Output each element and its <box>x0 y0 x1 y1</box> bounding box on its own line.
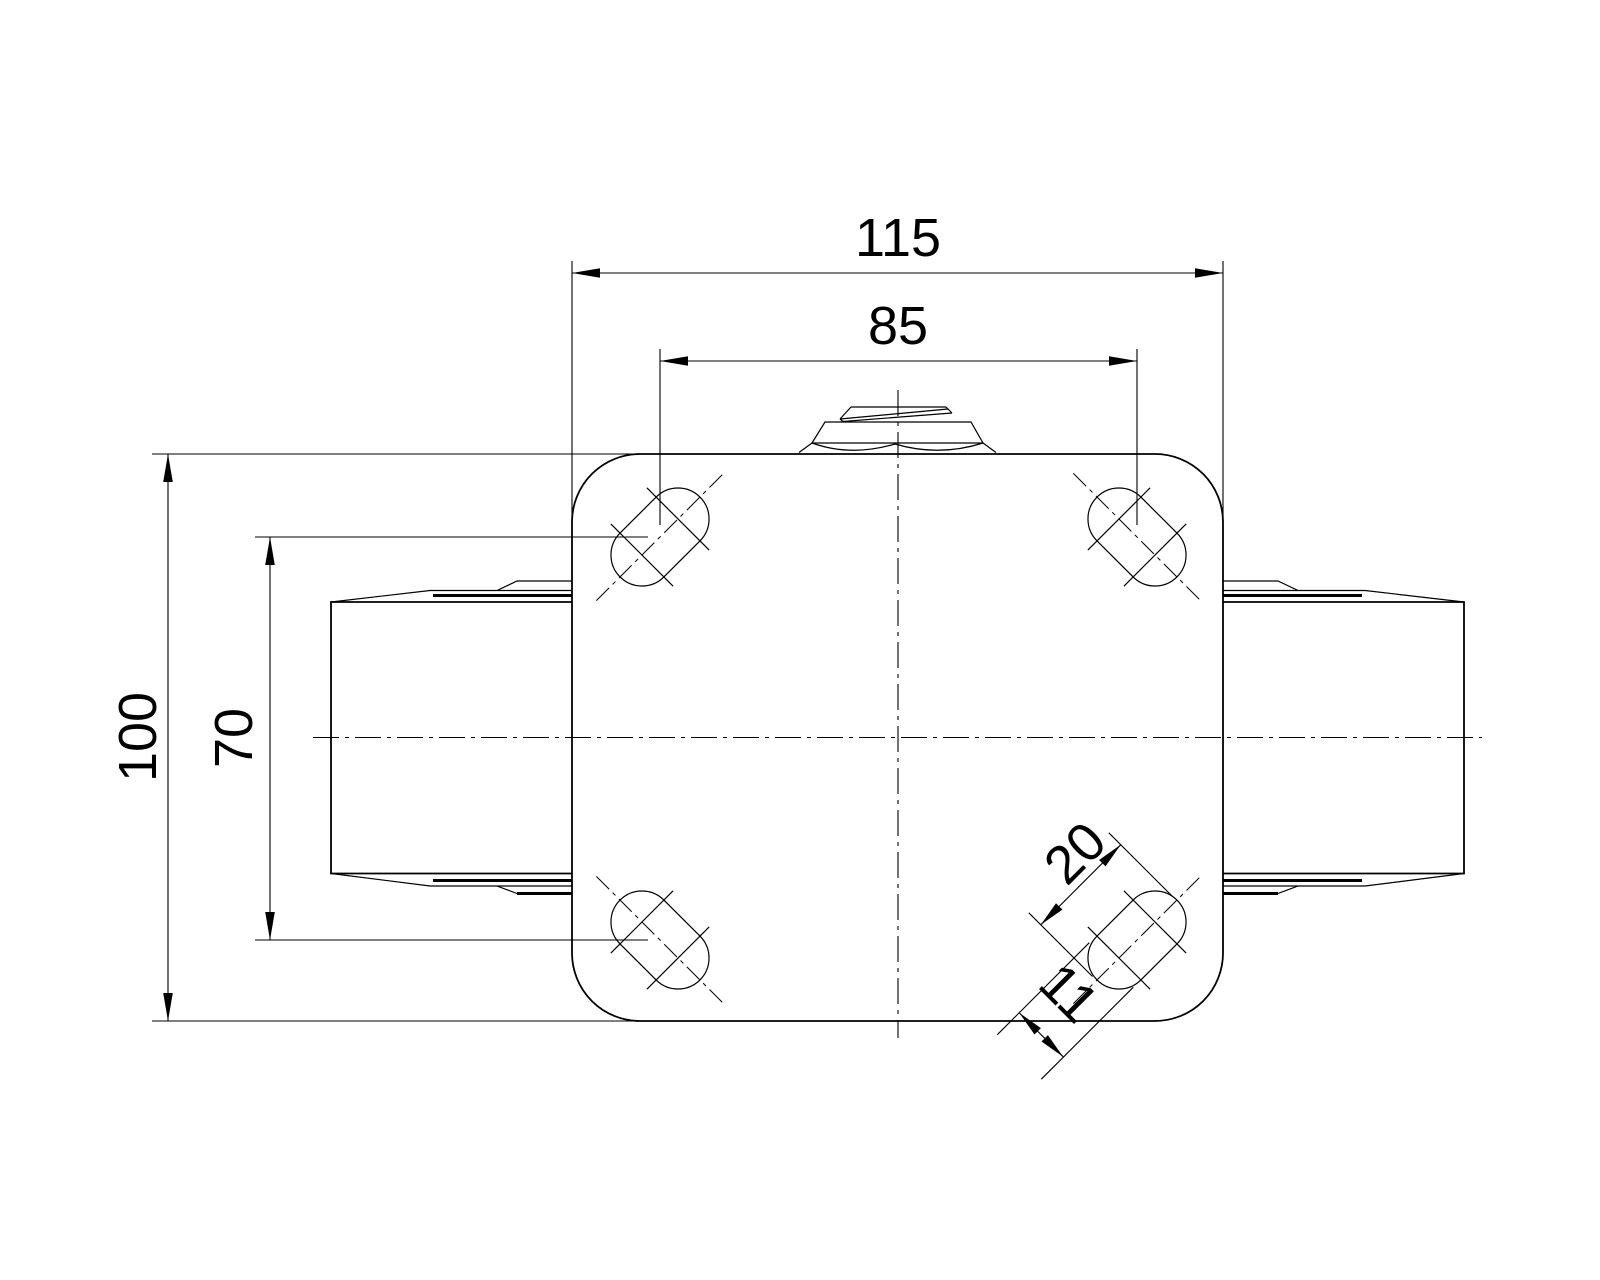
dim-70-label: 70 <box>204 708 264 768</box>
arrowhead <box>163 993 173 1021</box>
dim-11-label: 11 <box>1028 952 1110 1034</box>
arrowhead <box>163 454 173 482</box>
arrowhead <box>1195 268 1223 278</box>
arrowhead <box>1109 356 1137 366</box>
dim-115-label: 115 <box>855 208 941 268</box>
dim-100-label: 100 <box>108 692 168 782</box>
arrowhead <box>1042 1035 1064 1057</box>
dim-85-label: 85 <box>868 296 928 356</box>
technical-drawing: 115 85 100 70 20 <box>0 0 1600 1280</box>
dimension-slot-width: 11 <box>997 943 1133 1079</box>
dim-20-label: 20 <box>1033 811 1118 896</box>
dimension-hole-spacing-vertical: 70 <box>204 537 648 940</box>
arrowhead <box>572 268 600 278</box>
dimension-slot-length: 20 <box>1029 811 1173 977</box>
arrowhead <box>660 356 688 366</box>
arrowhead <box>1019 1013 1041 1035</box>
thread-stem <box>840 407 952 422</box>
arrowhead <box>1041 903 1063 925</box>
arrowhead <box>265 912 275 940</box>
arrowhead <box>265 537 275 565</box>
center-lines <box>313 390 1482 1038</box>
